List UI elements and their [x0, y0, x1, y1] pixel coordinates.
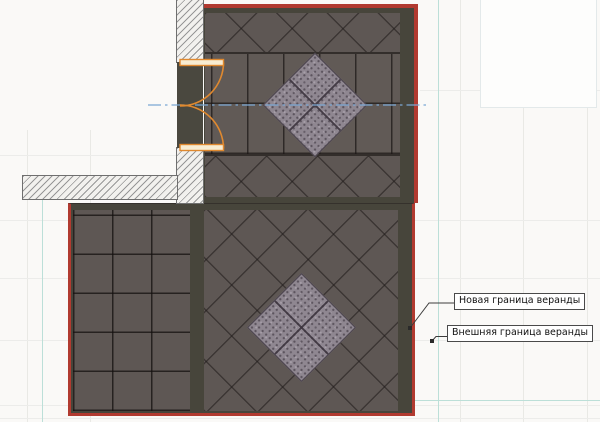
wall-vertical-upper[interactable] — [176, 0, 204, 63]
outer-boundary-guide-right — [438, 0, 439, 422]
grid-vline — [460, 0, 461, 422]
square-tiles-left — [73, 210, 190, 411]
grid-vline — [27, 130, 28, 422]
cad-canvas: Новая граница веранды Внешняя граница ве… — [0, 0, 600, 422]
door-opening — [177, 62, 203, 148]
outer-boundary-guide-bottom — [412, 400, 600, 401]
veranda-section-bottom[interactable] — [68, 203, 415, 416]
grid-hline — [0, 155, 176, 156]
callout-new-boundary[interactable]: Новая граница веранды — [454, 293, 585, 310]
reference-panel — [480, 0, 597, 108]
outer-boundary-guide-left — [42, 195, 43, 422]
callout-outer-boundary-label: Внешняя граница веранды — [452, 327, 588, 338]
callout-new-boundary-label: Новая граница веранды — [459, 295, 580, 306]
wall-vertical-lower[interactable] — [176, 147, 204, 204]
grid-hline — [0, 418, 600, 419]
callout-outer-boundary[interactable]: Внешняя граница веранды — [447, 325, 593, 342]
wall-horizontal[interactable] — [22, 175, 178, 200]
